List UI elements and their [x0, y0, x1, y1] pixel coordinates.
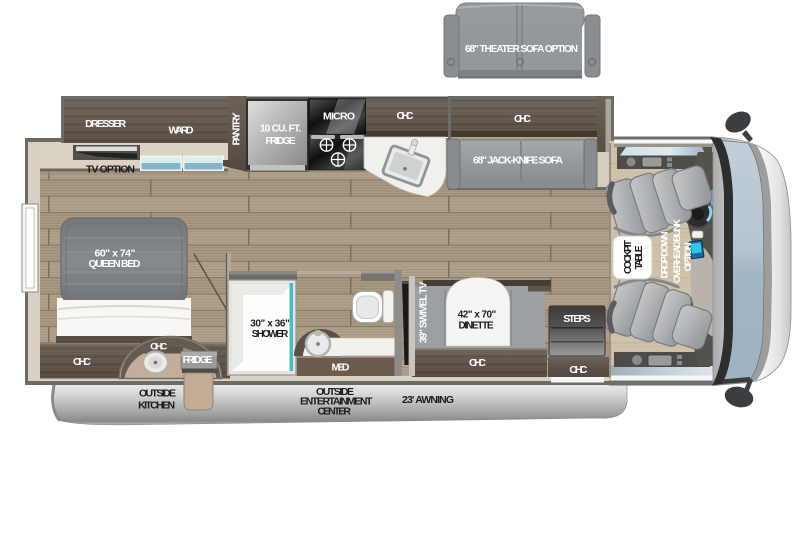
svg-text:WARD: WARD [169, 125, 194, 137]
svg-text:TABLE: TABLE [634, 245, 645, 269]
svg-text:KITCHEN: KITCHEN [138, 400, 175, 412]
svg-text:30" x 36": 30" x 36" [250, 319, 290, 330]
svg-text:OVERHEAD BUNK: OVERHEAD BUNK [672, 219, 683, 283]
svg-text:DINETTE: DINETTE [459, 321, 494, 332]
svg-text:CENTER: CENTER [317, 406, 351, 418]
svg-text:TV OPTION: TV OPTION [86, 164, 135, 176]
svg-text:OHC: OHC [73, 356, 91, 368]
svg-text:OUTSIDE: OUTSIDE [139, 388, 176, 400]
svg-text:FRIDGE: FRIDGE [266, 136, 296, 147]
svg-text:STEPS: STEPS [563, 313, 591, 325]
svg-text:OHC: OHC [469, 357, 486, 369]
svg-text:OPTION: OPTION [683, 242, 694, 271]
svg-text:68" JACK-KNIFE SOFA: 68" JACK-KNIFE SOFA [473, 155, 563, 167]
svg-text:FRIDGE: FRIDGE [183, 355, 213, 366]
svg-text:39" SWIVEL TV: 39" SWIVEL TV [419, 282, 430, 343]
svg-text:OHC: OHC [569, 364, 587, 376]
svg-text:MED: MED [332, 362, 350, 374]
svg-text:MICRO: MICRO [323, 111, 355, 123]
svg-text:QUEEN BED: QUEEN BED [89, 258, 141, 270]
svg-text:68" THEATER SOFA OPTION: 68" THEATER SOFA OPTION [465, 44, 578, 55]
svg-text:42" x 70": 42" x 70" [458, 310, 497, 321]
svg-text:COCKPIT: COCKPIT [623, 240, 634, 274]
svg-text:OHC: OHC [514, 113, 531, 125]
svg-text:DRESSER: DRESSER [85, 118, 126, 130]
svg-text:OHC: OHC [150, 342, 167, 353]
svg-text:10 CU. FT.: 10 CU. FT. [260, 124, 301, 135]
svg-text:SHOWER: SHOWER [252, 329, 289, 340]
svg-text:PANTRY: PANTRY [231, 113, 243, 146]
svg-text:OHC: OHC [397, 110, 414, 122]
svg-text:DROP-DOWN: DROP-DOWN [660, 231, 671, 278]
svg-text:23' AWNING: 23' AWNING [402, 394, 454, 406]
